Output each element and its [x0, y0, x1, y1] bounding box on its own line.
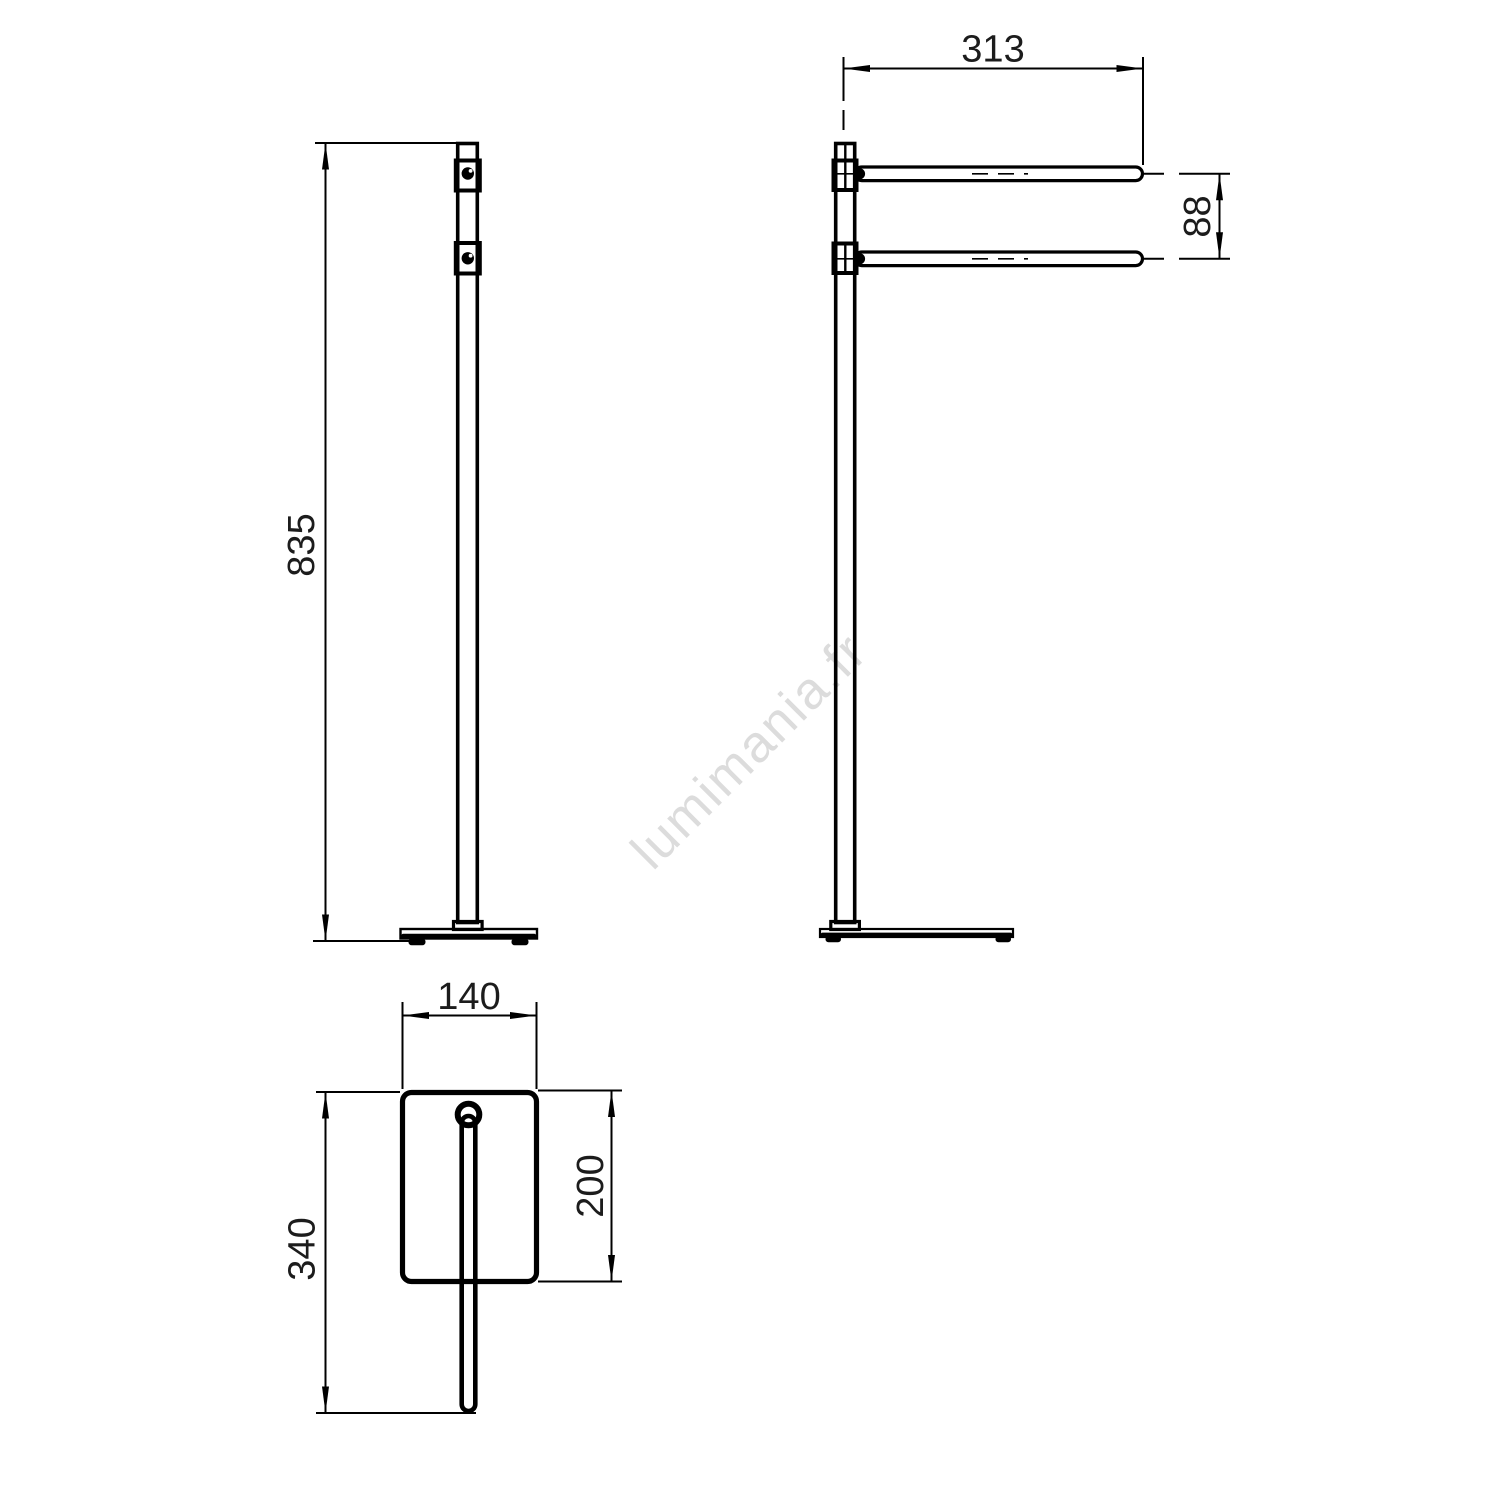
front-view: 835 — [281, 143, 537, 945]
front-base-plate-band — [401, 934, 537, 939]
side-view: 313 88 — [820, 29, 1230, 943]
dimension-overall-depth: 340 — [282, 1092, 477, 1413]
side-foot-right — [996, 936, 1012, 942]
dimension-label-base-width: 140 — [437, 976, 500, 1018]
dimension-label-height: 835 — [281, 513, 323, 576]
front-foot-left — [409, 939, 426, 946]
watermark-text: lumimania.fr — [620, 622, 878, 880]
dimension-base-width: 140 — [403, 976, 537, 1089]
screw-highlight — [469, 169, 473, 173]
screw-icon — [462, 252, 474, 264]
dimension-arm-spacing: 88 — [1177, 174, 1230, 259]
front-foot-right — [512, 939, 529, 946]
screw-highlight — [469, 254, 473, 258]
dimension-label-base-depth: 200 — [570, 1154, 612, 1217]
drawing-canvas: lumimania.fr 835 — [0, 0, 1500, 1500]
dimension-label-arm-length: 313 — [961, 29, 1024, 71]
side-foot-left — [826, 936, 842, 942]
technical-drawing-svg: lumimania.fr 835 — [0, 0, 1500, 1500]
towel-arm-lower — [854, 252, 1164, 266]
screw-icon — [462, 167, 474, 179]
dimension-overall-height: 835 — [281, 143, 478, 941]
side-base-plate-band — [821, 933, 1013, 938]
top-base-plate — [403, 1093, 537, 1282]
dimension-label-overall-depth: 340 — [282, 1217, 324, 1280]
dimension-arm-length: 313 — [844, 29, 1144, 166]
top-view: 140 340 200 — [282, 976, 623, 1413]
top-arm-bar — [462, 1116, 476, 1411]
towel-arm-upper — [854, 167, 1164, 181]
dimension-label-arm-spacing: 88 — [1177, 195, 1219, 237]
dimension-base-depth: 200 — [538, 1091, 622, 1282]
